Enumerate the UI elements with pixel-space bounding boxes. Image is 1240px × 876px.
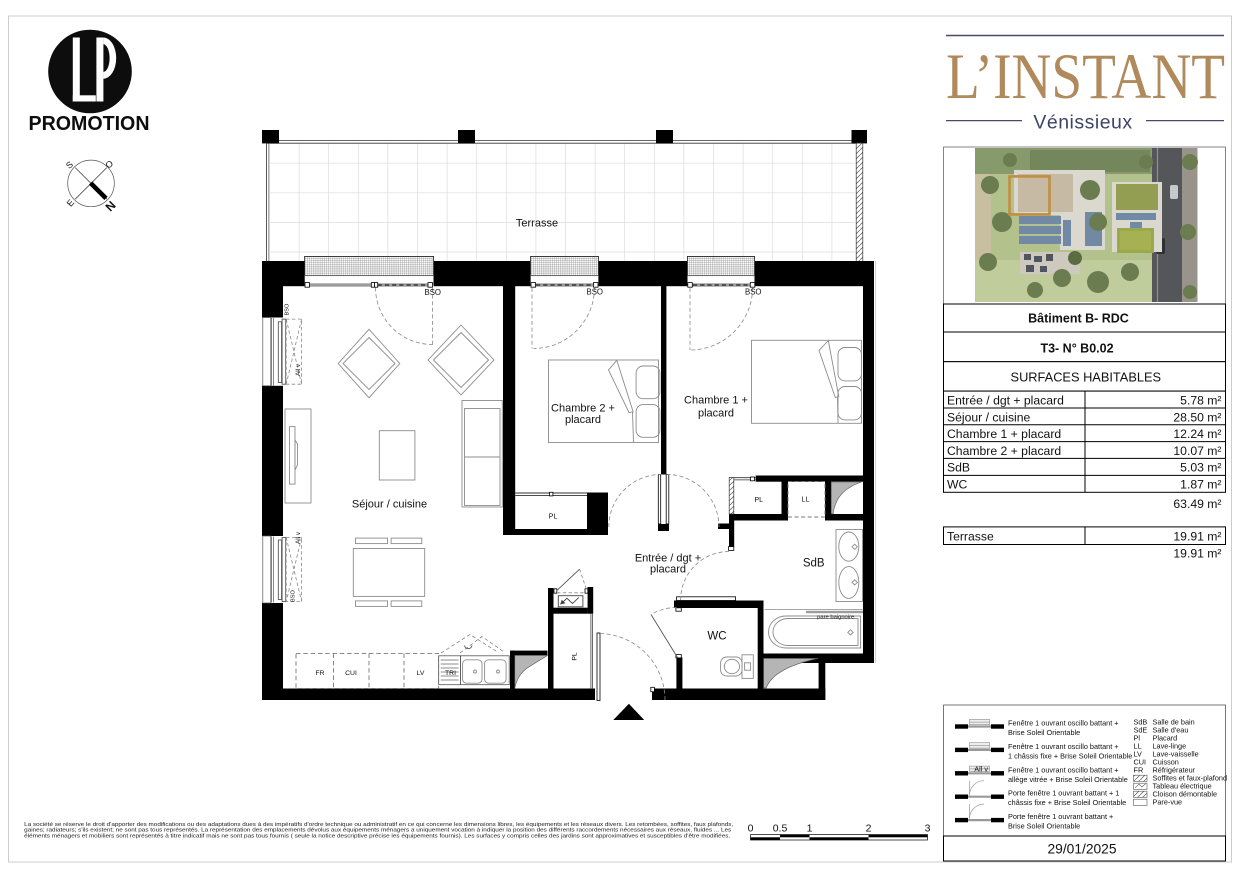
svg-text:placard: placard <box>650 564 686 576</box>
svg-text:19.91 m²: 19.91 m² <box>1173 547 1221 561</box>
svg-text:Entrée / dgt + placard: Entrée / dgt + placard <box>947 394 1064 408</box>
svg-text:Fenêtre 1 ouvrant oscillo batt: Fenêtre 1 ouvrant oscillo battant + <box>1008 765 1119 774</box>
svg-text:placard: placard <box>698 408 734 420</box>
svg-text:LL: LL <box>802 495 810 504</box>
svg-text:CUI: CUI <box>345 670 357 677</box>
svg-text:3: 3 <box>925 823 931 835</box>
svg-text:WC: WC <box>707 631 726 643</box>
svg-text:2: 2 <box>866 823 872 835</box>
svg-text:PL: PL <box>572 652 579 661</box>
svg-text:29/01/2025: 29/01/2025 <box>1047 842 1116 857</box>
svg-text:12.24 m²: 12.24 m² <box>1173 427 1221 441</box>
svg-text:Porte fenêtre 1 ouvrant battan: Porte fenêtre 1 ouvrant battant + 1 <box>1008 789 1119 798</box>
svg-text:FR: FR <box>1134 766 1144 775</box>
svg-text:All v: All v <box>974 764 988 773</box>
svg-text:PL: PL <box>549 512 558 521</box>
svg-text:T3- N° B0.02: T3- N° B0.02 <box>1040 342 1113 356</box>
svg-text:éléments ménagers et mobiliers: éléments ménagers et mobiliers sont repr… <box>24 833 730 839</box>
svg-text:Terrasse: Terrasse <box>516 218 558 230</box>
svg-text:BSO: BSO <box>745 288 761 297</box>
svg-text:1: 1 <box>807 823 813 835</box>
svg-text:Brise Soleil Orientable: Brise Soleil Orientable <box>1008 728 1080 737</box>
svg-text:pare baignoire: pare baignoire <box>817 615 854 621</box>
svg-text:Vénissieux: Vénissieux <box>1033 112 1132 134</box>
svg-text:5.78 m²: 5.78 m² <box>1180 394 1221 408</box>
svg-text:LV: LV <box>417 670 425 677</box>
svg-text:Chambre 1 + placard: Chambre 1 + placard <box>947 427 1061 441</box>
svg-text:BSO: BSO <box>291 590 297 602</box>
svg-text:0: 0 <box>748 823 754 835</box>
svg-text:Bâtiment B- RDC: Bâtiment B- RDC <box>1028 312 1129 326</box>
svg-text:PROMOTION: PROMOTION <box>29 112 150 135</box>
svg-text:SdB: SdB <box>803 558 825 570</box>
svg-text:BSO: BSO <box>285 303 291 315</box>
svg-text:Chambre 2 +: Chambre 2 + <box>551 403 615 415</box>
svg-text:TRI: TRI <box>445 670 456 677</box>
svg-text:63.49 m²: 63.49 m² <box>1173 497 1221 511</box>
svg-text:Brise Soleil Orientable: Brise Soleil Orientable <box>1008 822 1080 831</box>
svg-text:SdB: SdB <box>947 461 970 475</box>
svg-text:All v: All v <box>295 531 302 544</box>
svg-text:Porte fenêtre 1 ouvrant battan: Porte fenêtre 1 ouvrant battant + <box>1008 812 1113 821</box>
svg-text:BSO: BSO <box>425 288 441 297</box>
svg-text:PL: PL <box>754 495 763 504</box>
svg-text:1.87 m²: 1.87 m² <box>1180 478 1221 492</box>
svg-text:Terrasse: Terrasse <box>947 529 994 543</box>
svg-text:FR: FR <box>315 670 324 677</box>
svg-text:WC: WC <box>947 478 968 492</box>
svg-text:Fenêtre 1 ouvrant oscillo batt: Fenêtre 1 ouvrant oscillo battant + <box>1008 742 1119 751</box>
svg-text:19.91 m²: 19.91 m² <box>1173 529 1221 543</box>
svg-text:Séjour / cuisine: Séjour / cuisine <box>352 499 427 511</box>
svg-text:placard: placard <box>565 414 601 426</box>
svg-text:SURFACES HABITABLES: SURFACES HABITABLES <box>1011 370 1162 385</box>
svg-text:Séjour / cuisine: Séjour / cuisine <box>947 410 1031 424</box>
svg-text:L’INSTANT: L’INSTANT <box>946 41 1225 113</box>
svg-text:5.03 m²: 5.03 m² <box>1180 461 1221 475</box>
svg-text:châssis fixe + Brise Soleil Or: châssis fixe + Brise Soleil Orientable <box>1008 798 1126 807</box>
svg-text:Fenêtre 1 ouvrant oscillo batt: Fenêtre 1 ouvrant oscillo battant + <box>1008 719 1119 728</box>
svg-text:allège vitrée + Brise Soleil O: allège vitrée + Brise Soleil Orientable <box>1008 775 1128 784</box>
svg-text:All v: All v <box>295 363 302 376</box>
svg-text:0.5: 0.5 <box>773 823 788 835</box>
svg-text:1 châssis fixe + Brise Soleil: 1 châssis fixe + Brise Soleil Orientable <box>1008 751 1132 760</box>
svg-text:Chambre 1 +: Chambre 1 + <box>684 395 748 407</box>
svg-text:BSO: BSO <box>587 288 603 297</box>
svg-text:Pare-vue: Pare-vue <box>1153 798 1183 807</box>
svg-text:Chambre 2 + placard: Chambre 2 + placard <box>947 444 1061 458</box>
svg-text:28.50 m²: 28.50 m² <box>1173 410 1221 424</box>
svg-text:10.07 m²: 10.07 m² <box>1173 444 1221 458</box>
